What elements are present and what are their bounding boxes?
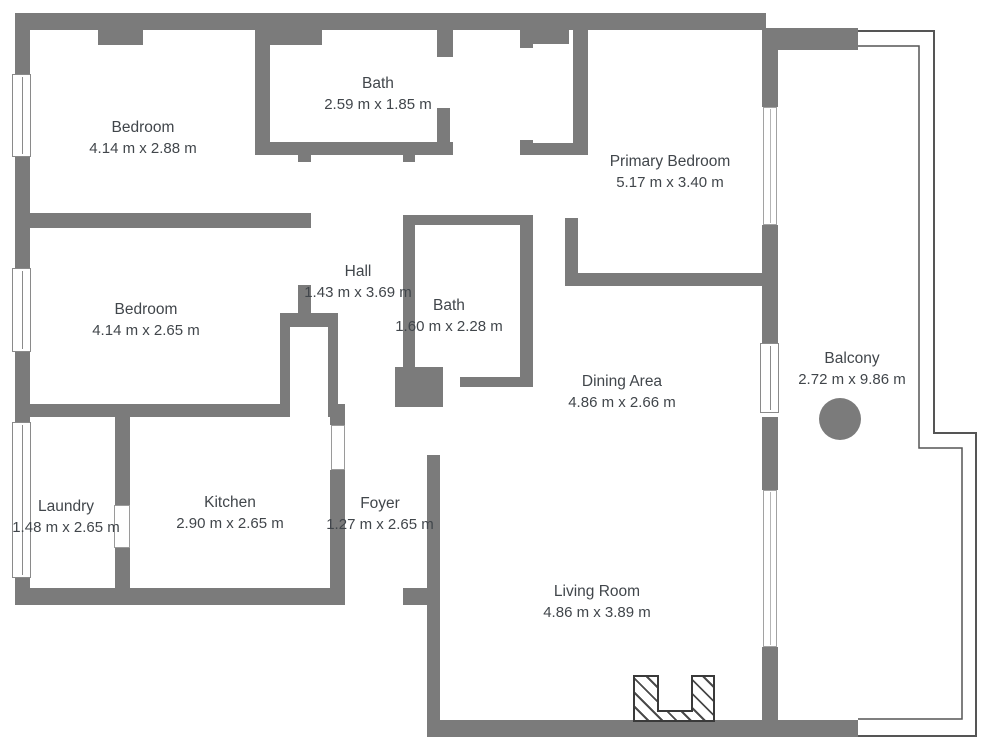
wall-right [762,225,778,343]
room-dimensions: 5.17 m x 3.40 m [610,172,731,193]
wall-left [15,352,30,422]
room-name: Living Room [543,581,651,602]
room-label-dining-area: Dining Area 4.86 m x 2.66 m [568,371,676,413]
wall-kitchen-foyer-divider [330,417,345,425]
wall-bedroom-divider [30,213,311,228]
room-dimensions: 1.48 m x 2.65 m [12,517,120,538]
room-dimensions: 1.27 m x 2.65 m [326,514,434,535]
wall-laundry-divider [115,548,130,588]
room-dimensions: 2.72 m x 9.86 m [798,369,906,390]
wall-kitchen-top [328,404,345,417]
wall-right [762,28,778,107]
wall-laundry-divider [115,417,130,505]
wall-closet-stub [520,28,533,48]
room-label-laundry: Laundry 1.48 m x 2.65 m [12,496,120,538]
wall-bath1-right [437,28,453,57]
wall-bath1-right [437,108,450,142]
wall-hall-left [298,155,311,162]
wall-left [15,157,30,268]
room-dimensions: 2.90 m x 2.65 m [176,513,284,534]
room-name: Balcony [798,348,906,369]
wall-primary-dining-divider [565,273,762,286]
room-name: Bath [324,73,432,94]
room-name: Bedroom [92,299,200,320]
wall-bath1-bottom [255,142,453,155]
wall-pillar [98,30,143,45]
wall-closet-right [573,28,588,155]
room-label-balcony: Balcony 2.72 m x 9.86 m [798,348,906,390]
wall-kitchen-top [30,404,290,417]
wall-bath2-right [520,215,533,387]
wall-hall-right-stub [403,155,415,162]
room-label-bath-top: Bath 2.59 m x 1.85 m [324,73,432,115]
wall-bath1-left [255,28,270,142]
room-name: Laundry [12,496,120,517]
chimney-flue [657,675,693,712]
room-label-bath-middle: Bath 1.60 m x 2.28 m [395,295,503,337]
wall-bottom-left [15,588,345,605]
room-label-living-room: Living Room 4.86 m x 3.89 m [543,581,651,623]
room-dimensions: 4.86 m x 2.66 m [568,392,676,413]
chimney-hatched [633,675,715,722]
room-name: Bath [395,295,503,316]
room-name: Kitchen [176,492,284,513]
window [12,74,31,157]
wall-primary-nook [565,218,578,286]
round-table [819,398,861,440]
wall-bath2-top [403,215,533,225]
room-label-kitchen: Kitchen 2.90 m x 2.65 m [176,492,284,534]
wall-bath2-corner [395,367,443,407]
floor-plan: Bedroom 4.14 m x 2.88 m Bath 2.59 m x 1.… [0,0,983,744]
room-dimensions: 4.14 m x 2.88 m [89,138,197,159]
room-label-bedroom-1: Bedroom 4.14 m x 2.88 m [89,117,197,159]
wall-top-balcony [766,28,858,50]
room-name: Foyer [326,493,434,514]
sliding-door [763,107,777,225]
wall-closet2-right [328,327,338,404]
room-dimensions: 4.14 m x 2.65 m [92,320,200,341]
wall-right [762,417,778,490]
room-label-bedroom-2: Bedroom 4.14 m x 2.65 m [92,299,200,341]
room-name: Hall [304,261,412,282]
window [12,268,31,352]
interior-door [331,425,345,470]
wall-right [762,647,778,733]
wall-top [15,13,766,30]
room-label-primary-bedroom: Primary Bedroom 5.17 m x 3.40 m [610,151,731,193]
room-dimensions: 1.60 m x 2.28 m [395,316,503,337]
room-label-foyer: Foyer 1.27 m x 2.65 m [326,493,434,535]
window [760,343,779,413]
wall-closet2-top [280,313,338,327]
room-dimensions: 2.59 m x 1.85 m [324,94,432,115]
wall-left [15,13,30,74]
wall-bath2-bottom [460,377,533,387]
wall-bath1-recess [270,28,322,45]
room-dimensions: 4.86 m x 3.89 m [543,602,651,623]
room-name: Primary Bedroom [610,151,731,172]
sliding-door [763,490,777,647]
room-name: Bedroom [89,117,197,138]
room-name: Dining Area [568,371,676,392]
wall-bottom-living [427,720,858,737]
